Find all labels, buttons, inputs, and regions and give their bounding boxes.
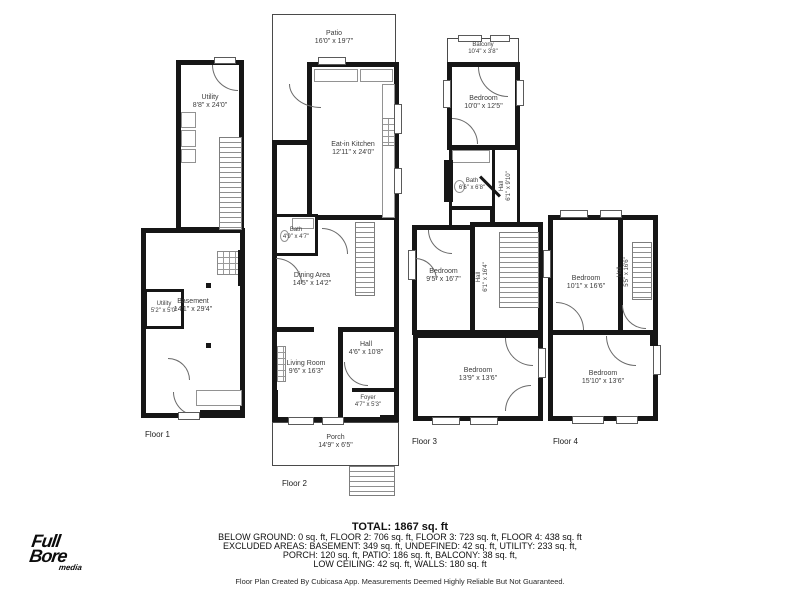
floor4-wall-segment <box>650 332 658 346</box>
floor1-window <box>178 412 200 420</box>
floor2-window <box>288 417 314 425</box>
room-label-hall-lower-f3: Hall 6'1" x 16'4" <box>476 257 490 297</box>
fullbore-media-logo: Full Bore media <box>27 534 92 572</box>
floor3-staircase <box>499 232 539 308</box>
floor1-shelf <box>181 130 196 147</box>
floor2-exterior-stairs <box>349 466 395 496</box>
floor1-post <box>206 343 211 348</box>
floor2-divider-wall <box>272 327 314 332</box>
floor2-staircase <box>355 222 375 296</box>
floor2-divider-wall <box>340 327 399 332</box>
floor2-window <box>394 168 402 194</box>
room-label-bedroom-top-f4: Bedroom 10'1" x 16'6" <box>548 275 624 291</box>
floor1-shelf <box>181 112 196 128</box>
floor1-post <box>206 283 211 288</box>
floor2-window <box>394 104 402 134</box>
floor4-window <box>560 210 588 218</box>
floor2-foyer-wall <box>352 388 399 392</box>
room-label-bath-f2: Bath 4'9" x 4'7" <box>274 227 318 241</box>
floor3-window <box>490 35 510 42</box>
floor1-window <box>214 57 236 64</box>
room-label-kitchen: Eat-in Kitchen 12'11" x 24'0" <box>307 141 399 157</box>
floor1-wall-segment <box>238 250 245 286</box>
room-label-hall-f4: Hall 5'5" x 16'6" <box>617 252 631 292</box>
floor4-window <box>543 250 551 278</box>
floor4-window <box>600 210 622 218</box>
floor3-label: Floor 3 <box>412 437 437 446</box>
room-label-bedroom-mid-f3: Bedroom 9'5" x 16'7" <box>412 268 475 284</box>
room-label-hall-f2: Hall 4'6" x 10'8" <box>338 341 394 357</box>
floor1-staircase <box>219 137 242 230</box>
room-label-bedroom-bottom-f4: Bedroom 15'10" x 13'6" <box>548 370 658 386</box>
room-label-utility-small: Utility 5'2" x 5'0" <box>144 301 184 315</box>
floor2-wall-segment <box>272 390 278 422</box>
floor4-window <box>616 416 638 424</box>
room-label-bedroom-bottom-f3: Bedroom 13'9" x 13'6" <box>413 367 543 383</box>
excluded-areas-text-3: LOW CEILING: 42 sq. ft, WALLS: 180 sq. f… <box>0 560 800 569</box>
room-label-utility-f1: Utility 8'8" x 24'0" <box>176 94 244 110</box>
floor4-label: Floor 4 <box>553 437 578 446</box>
floor2-kitchen-counter <box>360 69 393 82</box>
floor2-label: Floor 2 <box>282 479 307 488</box>
floor2-window <box>322 417 344 425</box>
floor2-wall-segment <box>380 415 399 422</box>
room-label-porch: Porch 14'9" x 6'5" <box>272 434 399 450</box>
floor1-bed <box>196 390 242 406</box>
area-summary: TOTAL: 1867 sq. ft BELOW GROUND: 0 sq. f… <box>0 521 800 586</box>
floor1-label: Floor 1 <box>145 430 170 439</box>
floor3-window <box>432 417 460 425</box>
floor3-window <box>470 417 498 425</box>
room-label-bath-f3: Bath 6'6" x 6'8" <box>449 178 495 192</box>
room-label-living: Living Room 9'6" x 16'3" <box>274 360 338 376</box>
floor4-staircase <box>632 242 652 300</box>
floor3-window <box>458 35 482 42</box>
floor1-wall-segment <box>200 410 244 418</box>
room-label-balcony: Balcony 10'4" x 3'8" <box>447 42 519 56</box>
floor1-shelf <box>181 149 196 163</box>
room-label-dining: Dining Area 14'5" x 14'2" <box>274 272 350 288</box>
floor4-window <box>572 416 604 424</box>
floor2-window <box>318 57 346 65</box>
room-label-hall-upper-f3: Hall 6'1" x 9'10" <box>499 166 513 206</box>
disclaimer-text: Floor Plan Created By Cubicasa App. Meas… <box>0 577 800 586</box>
room-label-foyer: Foyer 4'7" x 5'3" <box>343 395 393 409</box>
floor2-kitchen-counter <box>314 69 358 82</box>
floor-plan-canvas: Utility 8'8" x 24'0" Basement 14'1" x 29… <box>0 0 800 600</box>
room-label-bedroom-top-f3: Bedroom 10'0" x 12'5" <box>447 95 520 111</box>
room-label-patio: Patio 16'0" x 19'7" <box>272 30 396 46</box>
floor3-bathtub <box>452 150 490 163</box>
